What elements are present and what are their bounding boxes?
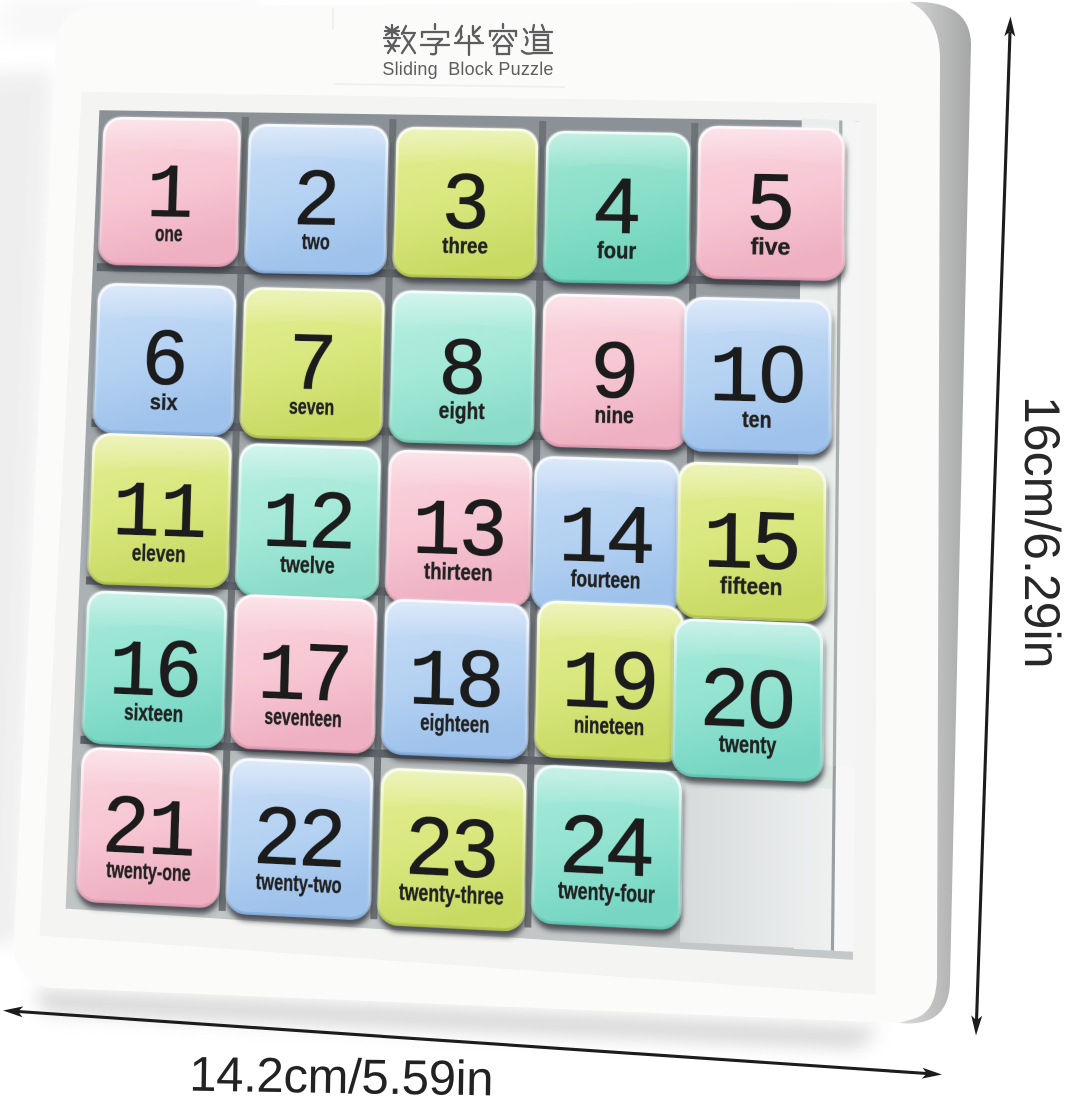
svg-text:eight: eight — [438, 397, 485, 424]
svg-text:eighteen: eighteen — [420, 709, 490, 738]
svg-text:fifteen: fifteen — [720, 572, 783, 601]
svg-text:sixteen: sixteen — [124, 699, 184, 727]
svg-text:twenty-two: twenty-two — [255, 868, 342, 898]
svg-text:seven: seven — [289, 393, 335, 420]
svg-text:ten: ten — [742, 407, 772, 433]
svg-text:seventeen: seventeen — [264, 703, 342, 732]
svg-text:twenty-four: twenty-four — [558, 877, 655, 909]
svg-text:two: two — [301, 228, 330, 254]
svg-text:twenty: twenty — [719, 731, 777, 760]
svg-text:nine: nine — [594, 402, 634, 429]
svg-text:twenty-three: twenty-three — [399, 879, 504, 911]
svg-text:Sliding Block Puzzle: Sliding Block Puzzle — [382, 59, 553, 79]
svg-text:four: four — [597, 237, 637, 263]
svg-text:14.2cm/5.59in: 14.2cm/5.59in — [189, 1048, 494, 1103]
svg-text:three: three — [442, 232, 488, 258]
svg-text:nineteen: nineteen — [574, 712, 645, 742]
svg-text:twenty-one: twenty-one — [106, 856, 191, 886]
svg-text:eleven: eleven — [131, 539, 186, 567]
svg-text:6: 6 — [142, 315, 188, 402]
svg-text:five: five — [750, 233, 790, 259]
svg-text:4: 4 — [594, 162, 641, 250]
svg-text:six: six — [150, 389, 179, 415]
svg-text:one: one — [155, 221, 183, 246]
svg-text:twelve: twelve — [280, 551, 335, 579]
svg-text:fourteen: fourteen — [570, 567, 640, 595]
svg-text:16cm/6.29in: 16cm/6.29in — [1014, 396, 1066, 668]
svg-text:thirteen: thirteen — [424, 558, 493, 586]
